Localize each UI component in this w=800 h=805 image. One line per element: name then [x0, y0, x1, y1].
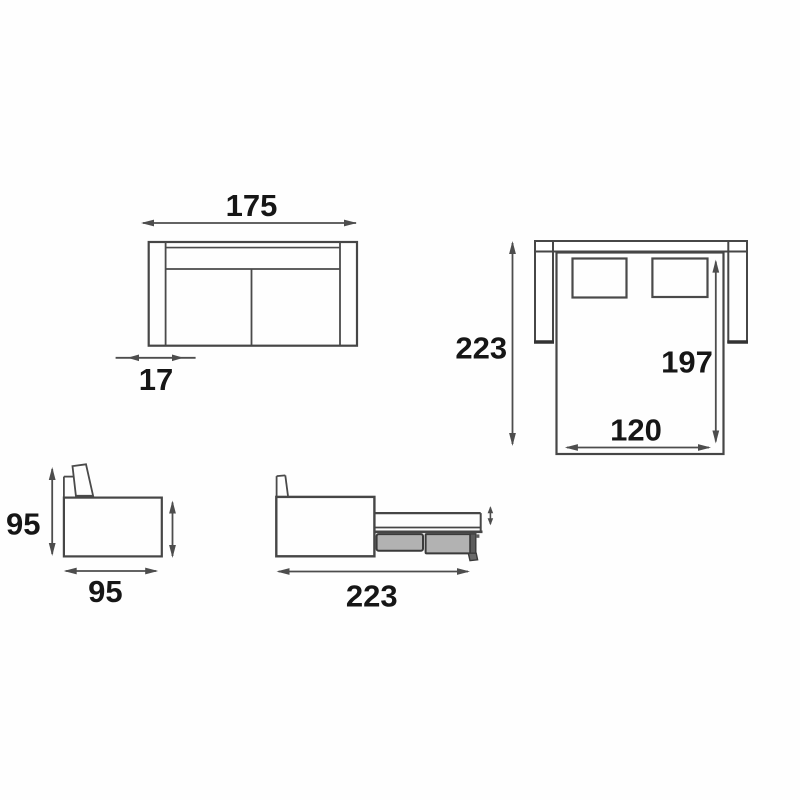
svg-text:197: 197: [661, 345, 713, 380]
svg-text:175: 175: [226, 188, 278, 223]
svg-text:223: 223: [455, 330, 507, 365]
svg-text:120: 120: [610, 413, 662, 448]
svg-text:95: 95: [6, 507, 40, 542]
svg-text:95: 95: [88, 574, 122, 609]
svg-text:17: 17: [139, 362, 173, 397]
svg-text:223: 223: [346, 579, 398, 614]
